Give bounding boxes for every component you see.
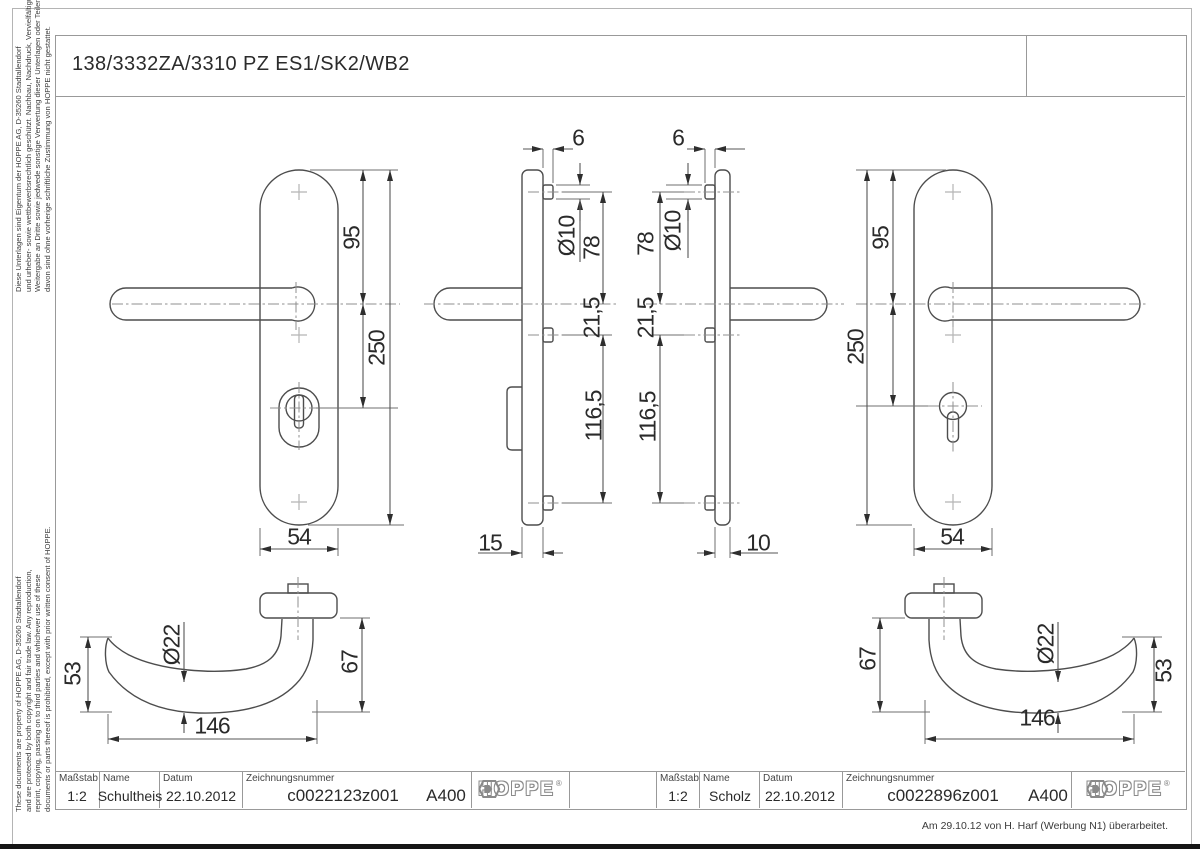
name-value-left: Schultheis: [98, 788, 163, 804]
dim-inner-plate-250: 250: [843, 329, 870, 364]
dim-inner-side-d10: Ø10: [660, 211, 687, 251]
drawing-sheet: Diese Unterlagen sind Eigentum der HOPPE…: [0, 0, 1200, 849]
dim-inner-side-21-5: 21,5: [633, 298, 660, 339]
dim-outer-plate-95: 95: [339, 226, 366, 250]
dim-handle-left-53: 53: [60, 662, 87, 686]
cylinder-cover-profile: [507, 387, 522, 450]
dim-inner-side-6: 6: [672, 125, 684, 152]
dim-outer-side-d10: Ø10: [554, 216, 581, 256]
dim-handle-right-146: 146: [1019, 705, 1054, 732]
dim-handle-right-67: 67: [855, 647, 882, 671]
dim-inner-plate-54: 54: [940, 524, 964, 551]
dim-handle-right-d22: Ø22: [1033, 624, 1060, 664]
dim-inner-side-116-5: 116,5: [635, 392, 662, 443]
date-value-left: 22.10.2012: [166, 788, 236, 804]
dim-inner-plate-95: 95: [868, 226, 895, 250]
drawing-no-value-left: c0022123z001: [287, 786, 399, 806]
inner-plate-outline: [914, 170, 992, 525]
dim-handle-left-67: 67: [337, 650, 364, 674]
drawing-no-label-left: Zeichnungsnummer: [246, 773, 334, 784]
inner-plate-profile: [715, 170, 730, 525]
dim-outer-plate-250: 250: [364, 330, 391, 365]
dim-outer-plate-54: 54: [287, 524, 311, 551]
registered-mark: ®: [556, 779, 562, 788]
scale-label-right: Maßstab: [660, 773, 699, 784]
lever-handle-side-view-right: [872, 577, 1162, 744]
outer-plate-outline: [260, 170, 338, 525]
drawing-no-label-right: Zeichnungsnummer: [846, 773, 934, 784]
format-value-left: A400: [426, 786, 466, 806]
dim-handle-right-53: 53: [1151, 659, 1178, 683]
hoppe-hexagon-icon: [1086, 779, 1108, 799]
outer-plate-profile: [522, 170, 543, 525]
dim-handle-left-d22: Ø22: [159, 625, 186, 665]
dim-handle-left-146: 146: [194, 713, 229, 740]
scale-label-left: Maßstab: [59, 773, 98, 784]
dim-outer-side-6: 6: [572, 125, 584, 152]
scale-value-right: 1:2: [668, 788, 687, 804]
date-label-left: Datum: [163, 773, 192, 784]
scale-value-left: 1:2: [67, 788, 86, 804]
hoppe-logo-left: HOPPE ®: [478, 779, 561, 801]
format-value-right: A400: [1028, 786, 1068, 806]
date-value-right: 22.10.2012: [765, 788, 835, 804]
dim-outer-side-21-5: 21,5: [579, 298, 606, 339]
hoppe-logo-right: HOPPE ®: [1086, 779, 1169, 801]
grip-inner-edge: [108, 619, 282, 671]
name-label-left: Name: [103, 773, 130, 784]
dim-inner-side-10: 10: [746, 530, 770, 557]
date-label-right: Datum: [763, 773, 792, 784]
dim-outer-side-78: 78: [579, 236, 606, 260]
dim-outer-side-15: 15: [478, 530, 502, 557]
inner-plate-front-view: [856, 170, 1146, 556]
name-label-right: Name: [703, 773, 730, 784]
registered-mark: ®: [1164, 779, 1170, 788]
name-value-right: Scholz: [709, 788, 751, 804]
dim-outer-side-116-5: 116,5: [581, 391, 608, 442]
drawing-no-value-right: c0022896z001: [887, 786, 999, 806]
outer-side-view: [424, 149, 616, 558]
dim-inner-side-78: 78: [633, 232, 660, 256]
hoppe-hexagon-icon: [478, 779, 500, 799]
